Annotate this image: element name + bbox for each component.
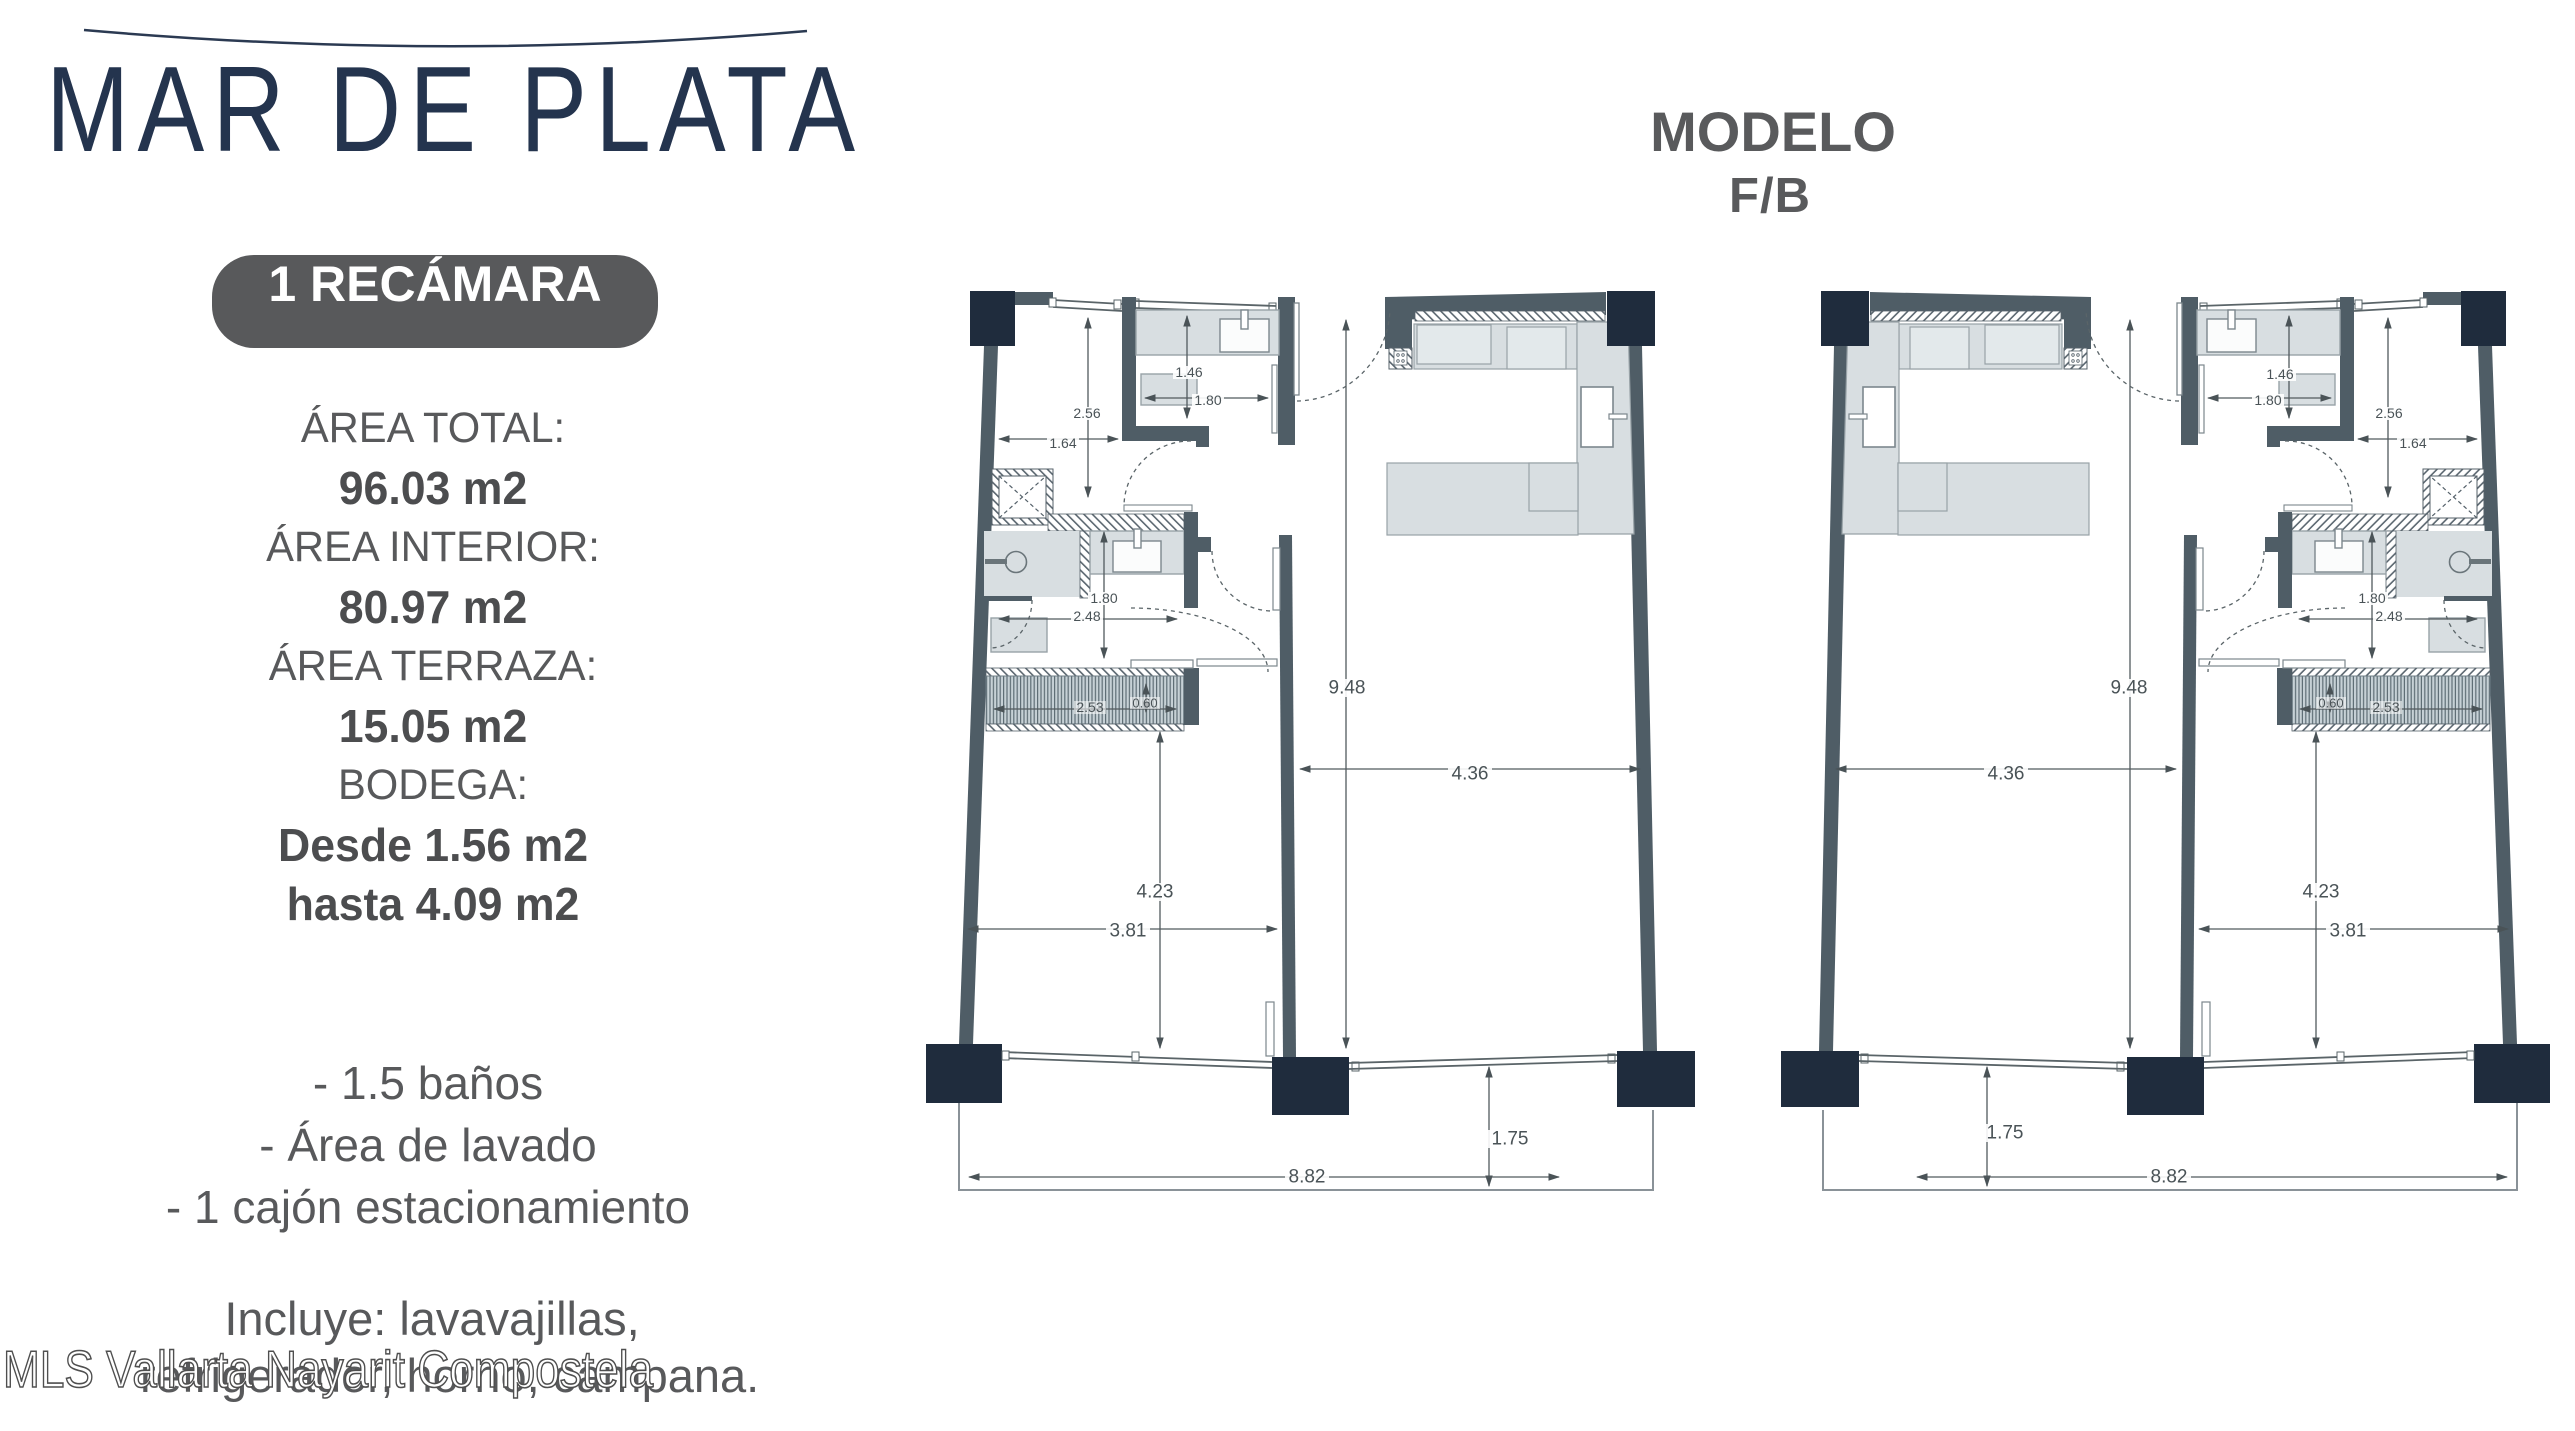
svg-text:8.82: 8.82 — [1289, 1167, 1326, 1188]
svg-text:2.53: 2.53 — [1076, 699, 1103, 715]
svg-text:1.80: 1.80 — [1090, 590, 1117, 606]
svg-text:1.64: 1.64 — [2399, 435, 2426, 451]
svg-text:2.48: 2.48 — [1073, 608, 1100, 624]
svg-text:3.81: 3.81 — [1110, 921, 1147, 942]
svg-text:3.81: 3.81 — [2330, 921, 2367, 942]
svg-text:4.36: 4.36 — [1988, 764, 2025, 785]
svg-text:8.82: 8.82 — [2151, 1167, 2188, 1188]
svg-text:1.46: 1.46 — [2266, 366, 2293, 382]
svg-text:4.36: 4.36 — [1452, 764, 1489, 785]
svg-text:2.48: 2.48 — [2375, 608, 2402, 624]
svg-text:9.48: 9.48 — [1329, 678, 1366, 699]
svg-text:1.75: 1.75 — [1987, 1123, 2024, 1144]
svg-text:1.46: 1.46 — [1175, 364, 1202, 380]
svg-text:1.64: 1.64 — [1049, 435, 1076, 451]
svg-text:1.80: 1.80 — [1194, 392, 1221, 408]
svg-text:2.56: 2.56 — [2375, 405, 2402, 421]
svg-text:2.53: 2.53 — [2372, 699, 2399, 715]
svg-text:1.80: 1.80 — [2358, 590, 2385, 606]
svg-text:2.56: 2.56 — [1073, 405, 1100, 421]
svg-text:0.60: 0.60 — [1132, 696, 1157, 711]
svg-text:0.60: 0.60 — [2318, 696, 2343, 711]
svg-text:4.23: 4.23 — [2303, 882, 2340, 903]
svg-text:9.48: 9.48 — [2111, 678, 2148, 699]
svg-text:1.75: 1.75 — [1492, 1129, 1529, 1150]
svg-text:4.23: 4.23 — [1137, 882, 1174, 903]
svg-text:1.80: 1.80 — [2254, 392, 2281, 408]
